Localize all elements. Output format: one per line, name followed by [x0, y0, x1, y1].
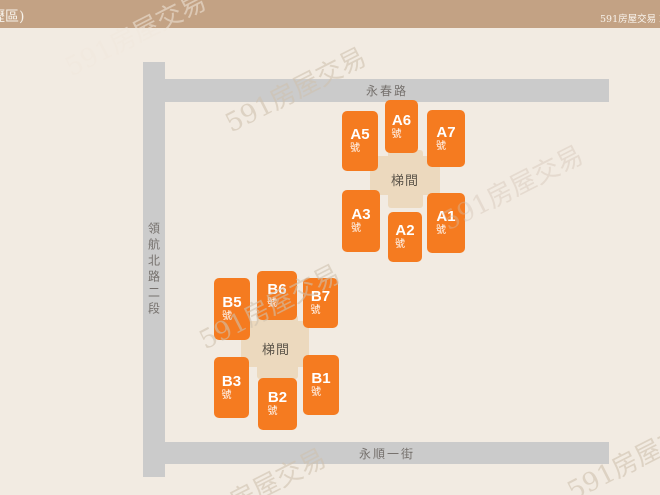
unit-B3[interactable]: B3 號 — [214, 357, 249, 418]
unit-suffix: 號 — [311, 387, 321, 399]
unit-id: A5 — [350, 127, 369, 143]
unit-id: A6 — [392, 113, 411, 129]
unit-B5[interactable]: B5 號 — [214, 278, 250, 340]
page-source-url: 591房屋交易 htt — [600, 11, 660, 25]
header-bar: 壢區) 591房屋交易 htt — [0, 0, 660, 28]
unit-A3[interactable]: A3 號 — [342, 190, 380, 252]
unit-id: A7 — [436, 125, 455, 141]
unit-suffix: 號 — [222, 311, 232, 323]
unit-id: B5 — [222, 295, 241, 311]
unit-suffix: 號 — [351, 223, 361, 235]
stairwell-a-label: 梯間 — [383, 170, 427, 189]
unit-id: B7 — [311, 289, 330, 305]
unit-suffix: 號 — [436, 225, 446, 237]
unit-suffix: 號 — [311, 305, 321, 317]
unit-suffix: 號 — [268, 406, 278, 418]
unit-B7[interactable]: B7 號 — [303, 278, 338, 328]
unit-B2[interactable]: B2 號 — [258, 378, 297, 430]
road-label-left: 領航北路二段 — [146, 222, 163, 318]
unit-id: B3 — [222, 374, 241, 390]
unit-id: B2 — [268, 390, 287, 406]
unit-A6[interactable]: A6 號 — [385, 100, 418, 153]
unit-A5[interactable]: A5 號 — [342, 111, 378, 171]
unit-suffix: 號 — [392, 129, 402, 141]
site-plan-page: 壢區) 591房屋交易 htt 領航北路二段 永春路 永順一街 梯間 A5 號 … — [0, 0, 660, 495]
unit-suffix: 號 — [350, 143, 360, 155]
road-label-bottom: 永順一街 — [359, 445, 415, 462]
unit-id: B1 — [311, 371, 330, 387]
unit-B1[interactable]: B1 號 — [303, 355, 339, 415]
unit-suffix: 號 — [436, 141, 446, 153]
road-bottom-horizontal: 永順一街 — [165, 442, 609, 464]
unit-A1[interactable]: A1 號 — [427, 193, 465, 253]
unit-B6[interactable]: B6 號 — [257, 271, 297, 320]
unit-A2[interactable]: A2 號 — [388, 212, 422, 262]
road-label-top: 永春路 — [366, 82, 408, 99]
unit-id: A2 — [395, 223, 414, 239]
unit-id: A1 — [436, 209, 455, 225]
unit-A7[interactable]: A7 號 — [427, 110, 465, 167]
unit-suffix: 號 — [267, 298, 277, 310]
page-title: 壢區) — [0, 6, 24, 26]
road-top-horizontal: 永春路 — [165, 79, 609, 102]
unit-suffix: 號 — [395, 239, 405, 251]
unit-suffix: 號 — [222, 390, 232, 402]
stairwell-b-label: 梯間 — [254, 339, 298, 358]
road-left-vertical: 領航北路二段 — [143, 62, 165, 477]
unit-id: A3 — [351, 207, 370, 223]
unit-id: B6 — [267, 282, 286, 298]
